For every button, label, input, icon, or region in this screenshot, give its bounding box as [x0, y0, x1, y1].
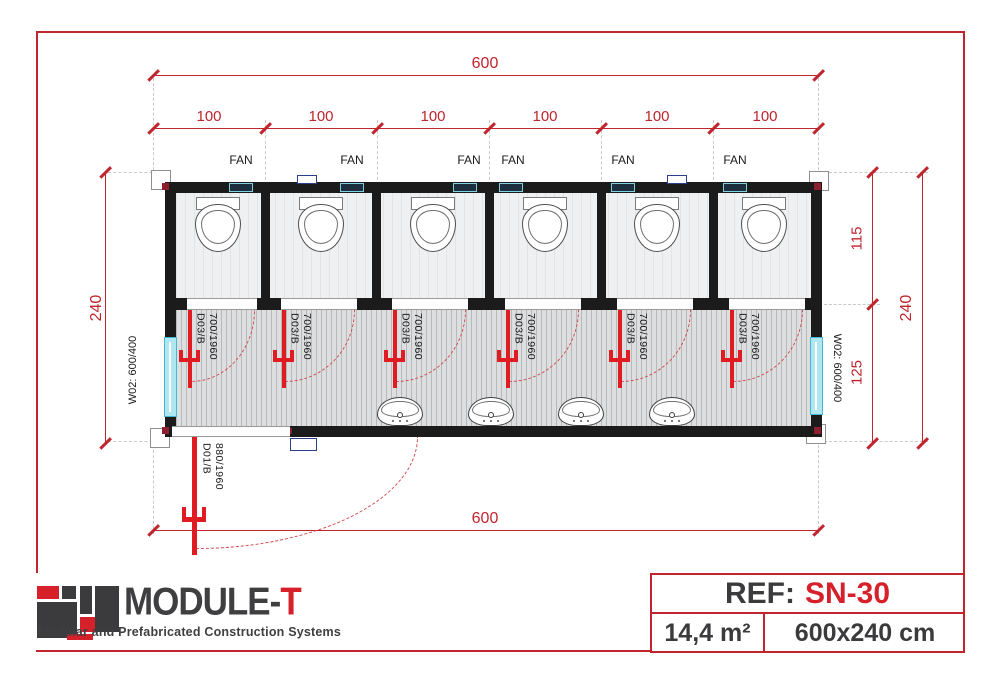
stall-door-label: D03/B 700/1960 — [194, 313, 219, 360]
frame-left — [36, 31, 38, 573]
door-code: D03/B — [736, 313, 749, 360]
reference-row: REF: SN-30 — [652, 575, 963, 614]
door-leaf — [188, 310, 192, 388]
stall-door-label: D03/B 700/1960 — [399, 313, 424, 360]
stall-door-label: D03/B 700/1960 — [512, 313, 537, 360]
toilet-bowl-inner — [640, 210, 674, 244]
faucet-icon — [397, 412, 403, 418]
door-code: D03/B — [624, 313, 637, 360]
dimension-label-segment: 100 — [735, 108, 795, 125]
roof-connector — [667, 175, 687, 184]
toilet-bowl-inner — [416, 210, 450, 244]
fan-vent — [229, 183, 253, 192]
dimension-label-right-total: 240 — [898, 248, 916, 368]
dimension-label-bottom-total: 600 — [455, 510, 515, 528]
door-size: 700/1960 — [412, 313, 425, 360]
stall-partition — [709, 182, 718, 310]
door-size: 700/1960 — [637, 313, 650, 360]
dimension-line-top-total — [153, 75, 818, 76]
door-opening — [617, 298, 693, 310]
window-right — [810, 337, 823, 415]
size-cell: 600x240 cm — [767, 614, 963, 653]
faucet-icon — [669, 412, 675, 418]
dimension-line-right-inner — [872, 172, 873, 443]
door-opening — [281, 298, 357, 310]
fan-vent — [453, 183, 477, 192]
door-size: 880/1960 — [213, 443, 226, 490]
toilet-bowl-inner — [201, 210, 235, 244]
door-code: D03/B — [399, 313, 412, 360]
dimension-label-right-upper: 115 — [849, 179, 866, 299]
stall-door-label: D03/B 700/1960 — [288, 313, 313, 360]
logo-main: MODULE- — [124, 580, 280, 624]
door-code: D03/B — [194, 313, 207, 360]
fan-label: FAN — [603, 153, 643, 167]
entrance-opening — [172, 426, 290, 437]
ref-label: REF: — [725, 577, 795, 611]
washbasin — [377, 397, 423, 426]
stall-partition — [261, 182, 270, 310]
dimension-label-top-total: 600 — [455, 55, 515, 73]
door-handle-prong — [721, 350, 725, 362]
toilet-bowl-inner — [304, 210, 338, 244]
wall-corner-mark — [162, 427, 169, 434]
entrance-swing-arc — [196, 437, 418, 549]
wall-corner-mark — [162, 183, 169, 190]
dimension-label-segment: 100 — [179, 108, 239, 125]
door-leaf — [282, 310, 286, 388]
fan-label: FAN — [449, 153, 489, 167]
logo-accent: T — [280, 580, 300, 624]
floor-plan-page: 600 100 100 100 100 100 100 600 240 115 … — [0, 0, 999, 686]
door-leaf — [618, 310, 622, 388]
fan-vent — [723, 183, 747, 192]
dimension-label-right-lower: 125 — [849, 313, 866, 433]
door-leaf — [730, 310, 734, 388]
door-opening — [729, 298, 805, 310]
dimension-label-segment: 100 — [627, 108, 687, 125]
door-code: D01/B — [200, 443, 213, 490]
roof-connector — [297, 175, 317, 184]
door-size: 700/1960 — [749, 313, 762, 360]
fan-vent — [611, 183, 635, 192]
door-handle-prong — [202, 507, 206, 522]
extension-line — [153, 440, 154, 534]
extension-line — [824, 172, 928, 173]
door-size: 700/1960 — [207, 313, 220, 360]
door-leaf — [506, 310, 510, 388]
dimension-label-left-total: 240 — [88, 248, 106, 368]
dimension-label-segment: 100 — [515, 108, 575, 125]
reference-table: REF: SN-30 14,4 m² 600x240 cm — [650, 573, 965, 653]
door-code: D03/B — [512, 313, 525, 360]
fan-vent — [499, 183, 523, 192]
door-handle-prong — [273, 350, 277, 362]
ref-value: SN-30 — [805, 577, 890, 611]
stall-partition — [597, 182, 606, 310]
window-right-label: W02: 600/400 — [831, 308, 843, 428]
door-handle-prong — [609, 350, 613, 362]
faucet-dots — [671, 420, 674, 423]
frame-right — [963, 31, 965, 653]
stall-partition — [485, 182, 494, 310]
frame-top — [36, 31, 965, 33]
door-size: 700/1960 — [301, 313, 314, 360]
faucet-icon — [578, 412, 584, 418]
fan-label: FAN — [332, 153, 372, 167]
door-handle-prong — [497, 350, 501, 362]
faucet-dots — [490, 420, 493, 423]
window-left-label: W02: 600/400 — [127, 310, 139, 430]
door-leaf — [393, 310, 397, 388]
fan-vent — [340, 183, 364, 192]
fan-label: FAN — [221, 153, 261, 167]
toilet-bowl-inner — [747, 210, 781, 244]
door-opening — [187, 298, 257, 310]
area-cell: 14,4 m² — [652, 614, 765, 653]
toilet-bowl-inner — [528, 210, 562, 244]
dimension-label-segment: 100 — [291, 108, 351, 125]
door-opening — [505, 298, 581, 310]
washbasin — [468, 397, 514, 426]
door-opening — [392, 298, 468, 310]
wall-corner-mark — [814, 183, 821, 190]
extension-line — [818, 440, 819, 534]
module-t-logo-text: MODULE-T — [124, 580, 301, 625]
door-code: D03/B — [288, 313, 301, 360]
stall-partition — [372, 182, 381, 310]
faucet-icon — [488, 412, 494, 418]
logo-tagline: Modular and Prefabricated Construction S… — [38, 625, 341, 639]
door-handle-prong — [179, 350, 183, 362]
dimension-line-right-total — [922, 172, 923, 443]
fan-label: FAN — [493, 153, 533, 167]
door-size: 700/1960 — [525, 313, 538, 360]
door-handle-prong — [182, 507, 186, 522]
stall-door-label: D03/B 700/1960 — [736, 313, 761, 360]
faucet-dots — [399, 420, 402, 423]
entrance-door-label: D01/B 880/1960 — [200, 443, 225, 490]
dimension-label-segment: 100 — [403, 108, 463, 125]
door-leaf — [192, 437, 197, 555]
fan-label: FAN — [715, 153, 755, 167]
wall-corner-mark — [814, 427, 821, 434]
stall-door-label: D03/B 700/1960 — [624, 313, 649, 360]
washbasin — [558, 397, 604, 426]
faucet-dots — [580, 420, 583, 423]
window-left — [164, 337, 177, 417]
washbasin — [649, 397, 695, 426]
door-handle-prong — [384, 350, 388, 362]
